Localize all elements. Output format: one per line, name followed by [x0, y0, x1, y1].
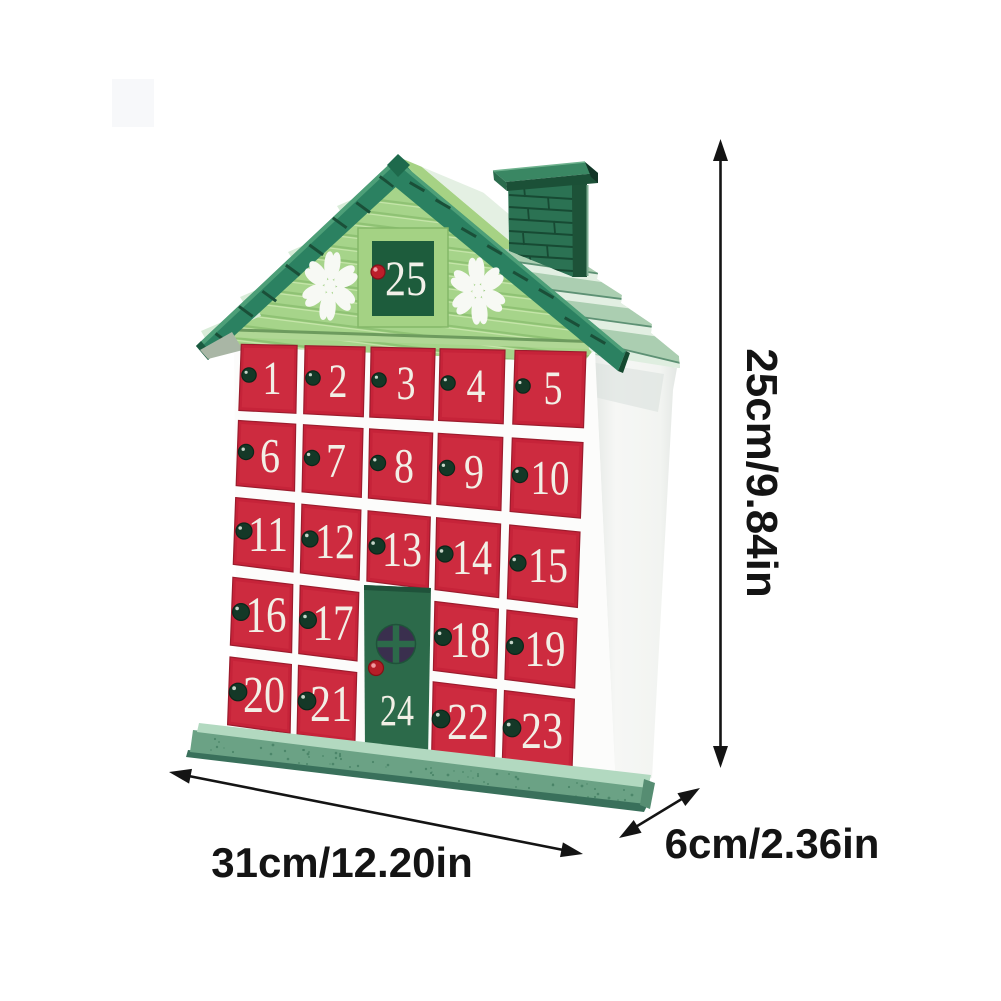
- svg-text:1: 1: [263, 352, 282, 405]
- svg-text:22: 22: [447, 694, 489, 751]
- svg-text:25: 25: [385, 250, 427, 306]
- svg-text:5: 5: [544, 362, 563, 415]
- svg-text:23: 23: [521, 703, 563, 760]
- svg-text:10: 10: [531, 450, 570, 505]
- svg-text:21: 21: [310, 676, 352, 733]
- svg-text:16: 16: [246, 588, 287, 644]
- svg-text:6cm/2.36in: 6cm/2.36in: [665, 820, 880, 867]
- svg-text:14: 14: [452, 529, 492, 585]
- svg-text:24: 24: [380, 686, 414, 735]
- svg-text:3: 3: [397, 357, 416, 410]
- svg-text:7: 7: [326, 433, 346, 488]
- svg-text:11: 11: [248, 506, 288, 562]
- svg-text:19: 19: [525, 622, 566, 678]
- svg-text:12: 12: [315, 513, 355, 569]
- svg-text:9: 9: [464, 444, 484, 499]
- svg-text:15: 15: [528, 537, 568, 593]
- svg-text:20: 20: [243, 667, 285, 724]
- svg-text:17: 17: [313, 596, 354, 652]
- svg-text:18: 18: [450, 613, 491, 669]
- svg-text:8: 8: [394, 438, 414, 493]
- svg-text:4: 4: [467, 360, 486, 413]
- svg-text:31cm/12.20in: 31cm/12.20in: [211, 839, 473, 886]
- svg-text:2: 2: [329, 355, 348, 408]
- svg-text:13: 13: [382, 521, 422, 577]
- svg-text:25cm/9.84in: 25cm/9.84in: [737, 348, 786, 598]
- svg-text:6: 6: [260, 428, 280, 483]
